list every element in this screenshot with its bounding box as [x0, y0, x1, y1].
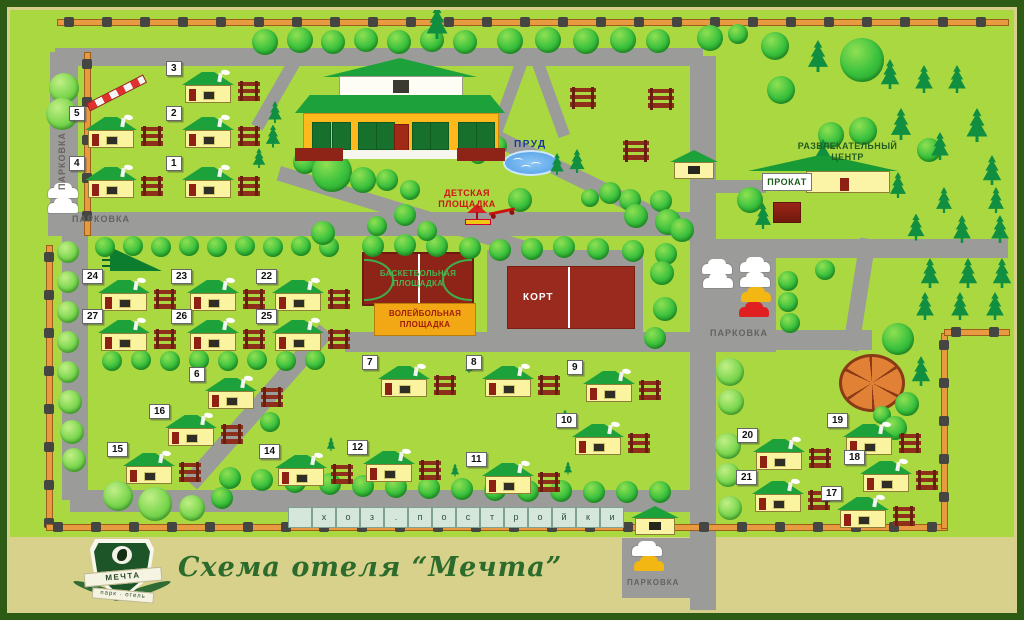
- tree-icon: [815, 260, 835, 280]
- car-icon: [634, 561, 664, 571]
- tree-icon: [778, 292, 798, 312]
- tree-icon: [207, 237, 227, 257]
- fence-post: [64, 17, 74, 27]
- tree-icon: [553, 236, 575, 258]
- fence-post: [939, 454, 949, 464]
- small-house: [670, 150, 718, 178]
- house-door: [489, 480, 496, 492]
- house-door: [579, 441, 586, 453]
- house-22: [272, 280, 352, 311]
- tree-icon: [761, 32, 789, 60]
- tennis-court-label: КОРТ: [508, 267, 568, 328]
- house-1: [182, 167, 262, 198]
- tree-icon: [583, 481, 605, 503]
- outbuildings-cell: о: [432, 507, 456, 528]
- house-10: [572, 424, 652, 455]
- woodpile-icon: [639, 380, 661, 400]
- tree-icon: [882, 323, 914, 355]
- house-number-label: 1: [166, 156, 182, 171]
- fence-post: [406, 17, 416, 27]
- tree-icon: [160, 351, 180, 371]
- fence-post: [862, 17, 872, 27]
- fence: [944, 329, 1010, 336]
- woodpile-icon: [243, 329, 265, 349]
- fence-post: [939, 340, 949, 350]
- house-12: [363, 451, 443, 482]
- house-number-label: 9: [567, 360, 583, 375]
- tree-icon: [350, 167, 376, 193]
- fence-post: [82, 59, 92, 69]
- tree-icon: [895, 392, 919, 416]
- woodpile-icon: [141, 126, 163, 146]
- building-clerestory: [339, 76, 463, 97]
- fence-post: [938, 17, 948, 27]
- fence: [46, 245, 53, 529]
- house-window: [203, 136, 215, 145]
- house-number-label: 2: [166, 106, 182, 121]
- house-3: [182, 72, 262, 103]
- fence-post: [927, 522, 937, 532]
- tree-icon: [622, 240, 644, 262]
- fence-post: [44, 290, 54, 300]
- house-window: [593, 443, 605, 452]
- woodpile-icon: [434, 375, 456, 395]
- house-number-label: 25: [256, 309, 277, 324]
- fence-post: [44, 252, 54, 262]
- woodpile-icon: [893, 506, 915, 526]
- pine-icon: [957, 258, 979, 288]
- fence-post: [596, 17, 606, 27]
- house-15: [123, 453, 203, 484]
- house-9: [583, 371, 663, 402]
- tree-icon: [103, 481, 133, 511]
- tree-icon: [573, 28, 599, 54]
- outbuildings-cell: р: [504, 507, 528, 528]
- house-25: [272, 320, 352, 351]
- playground-label: ДЕТСКАЯ ПЛОЩАДКА: [423, 188, 511, 211]
- tree-icon: [251, 469, 273, 491]
- fence-post: [939, 492, 949, 502]
- tree-icon: [179, 495, 205, 521]
- fence: [941, 333, 948, 529]
- house-24: [98, 280, 178, 311]
- house-door: [385, 383, 392, 395]
- parking-label-left-vertical: ПАРКОВКА: [57, 132, 67, 190]
- tree-icon: [394, 204, 416, 226]
- pond-label: ПРУД: [514, 139, 547, 150]
- small-house-roof: [670, 150, 718, 162]
- fence-post: [748, 17, 758, 27]
- fence-post: [44, 480, 54, 490]
- building-door: [394, 124, 409, 151]
- house-door: [279, 297, 286, 309]
- map-title: Схема отеля “Мечта”: [178, 552, 562, 583]
- tree-icon: [305, 350, 325, 370]
- tree-icon: [60, 420, 84, 444]
- woodpile-icon: [238, 81, 260, 101]
- fence-post: [129, 522, 139, 532]
- woodpile-icon: [648, 88, 674, 110]
- fence-post: [900, 17, 910, 27]
- house-5: [85, 117, 165, 148]
- pine-icon: [806, 40, 830, 72]
- shed: [773, 202, 801, 223]
- house-window: [296, 474, 308, 483]
- house-17: [837, 497, 917, 528]
- fence-post: [292, 17, 302, 27]
- fence-post: [53, 522, 63, 532]
- building-upper-roof: [323, 58, 477, 77]
- house-window: [773, 500, 785, 509]
- tree-icon: [376, 169, 398, 191]
- road: [531, 57, 570, 138]
- house-door: [105, 297, 112, 309]
- house-window: [399, 385, 411, 394]
- parking-label-center: ПАРКОВКА: [710, 328, 768, 338]
- pine-icon: [906, 214, 926, 241]
- tree-icon: [252, 29, 278, 55]
- woodpile-icon: [261, 387, 283, 407]
- fence-post: [444, 17, 454, 27]
- house-window: [119, 299, 131, 308]
- car-icon: [632, 546, 662, 556]
- tree-icon: [151, 237, 171, 257]
- tree-icon: [718, 496, 742, 520]
- woodpile-icon: [154, 329, 176, 349]
- car-icon: [740, 277, 770, 287]
- house-4: [85, 167, 165, 198]
- pine-icon: [919, 258, 941, 288]
- tree-icon: [644, 327, 666, 349]
- woodpile-icon: [179, 462, 201, 482]
- pine-icon: [914, 65, 935, 93]
- pine-icon: [563, 462, 573, 475]
- fence-post: [813, 522, 823, 532]
- tree-icon: [453, 30, 477, 54]
- tree-icon: [840, 38, 884, 82]
- volleyball-court: ВОЛЕЙБОЛЬНАЯ ПЛОЩАДКА: [374, 303, 476, 336]
- house-door: [130, 470, 137, 482]
- woodpile-icon: [538, 472, 560, 492]
- fence-post: [699, 522, 709, 532]
- tree-icon: [211, 487, 233, 509]
- tree-icon: [394, 234, 416, 256]
- house-window: [503, 482, 515, 491]
- house-window: [774, 458, 786, 467]
- woodpile-icon: [538, 375, 560, 395]
- house-window: [881, 480, 893, 489]
- fence-post: [167, 522, 177, 532]
- house-door: [279, 337, 286, 349]
- house-number-label: 19: [827, 413, 848, 428]
- tree-icon: [95, 237, 115, 257]
- fence-post: [254, 17, 264, 27]
- car-icon: [740, 262, 770, 272]
- small-house-window: [688, 166, 700, 174]
- house-number-label: 16: [149, 404, 170, 419]
- tennis-court: КОРТ: [507, 266, 635, 329]
- house-number-label: 8: [466, 355, 482, 370]
- woodpile-icon: [328, 329, 350, 349]
- house-window: [503, 385, 515, 394]
- house-14: [275, 455, 355, 486]
- house-window: [203, 91, 215, 100]
- tree-icon: [219, 467, 241, 489]
- house-number-label: 21: [736, 470, 757, 485]
- house-27: [98, 320, 178, 351]
- fence-post: [102, 17, 112, 27]
- tree-icon: [58, 390, 82, 414]
- house-door: [189, 89, 196, 101]
- house-window: [208, 299, 220, 308]
- tree-icon: [367, 216, 387, 236]
- house-window: [604, 390, 616, 399]
- tree-icon: [131, 350, 151, 370]
- hotel-logo: МЕЧТА парк · отель: [76, 537, 168, 609]
- house-window: [203, 186, 215, 195]
- tree-icon: [610, 27, 636, 53]
- house-door: [194, 337, 201, 349]
- tree-icon: [287, 27, 313, 53]
- tree-icon: [716, 358, 744, 386]
- tree-icon: [354, 28, 378, 52]
- basketball-court-label: БАСКЕТБОЛЬНАЯ ПЛОЩАДКА: [364, 254, 472, 304]
- house-8: [482, 366, 562, 397]
- woodpile-icon: [141, 176, 163, 196]
- house-window: [106, 186, 118, 195]
- tennis-court-pad: КОРТ: [487, 250, 643, 342]
- house-23: [187, 280, 267, 311]
- car-icon: [703, 278, 733, 288]
- fence-post: [44, 442, 54, 452]
- fence-post: [824, 17, 834, 27]
- house-number-label: 6: [189, 367, 205, 382]
- woodpile-icon: [419, 460, 441, 480]
- fence-post: [786, 17, 796, 27]
- house-door: [92, 134, 99, 146]
- tree-icon: [697, 25, 723, 51]
- tree-icon: [362, 235, 384, 257]
- house-window: [293, 339, 305, 348]
- house-door: [844, 514, 851, 526]
- outbuildings-cell: й: [552, 507, 576, 528]
- rental-label: ПРОКАТ: [762, 173, 812, 191]
- house-18: [860, 461, 940, 492]
- outbuildings-cell: з: [360, 507, 384, 528]
- house-door: [105, 337, 112, 349]
- house-window: [858, 516, 870, 525]
- fence-post: [178, 17, 188, 27]
- fence-post: [775, 522, 785, 532]
- tree-icon: [728, 24, 748, 44]
- house-door: [760, 456, 767, 468]
- outbuildings-cell: с: [456, 507, 480, 528]
- house-number-label: 10: [556, 413, 577, 428]
- main-building: [295, 58, 505, 162]
- house-2: [182, 117, 262, 148]
- tree-icon: [587, 238, 609, 260]
- pine-icon: [915, 292, 936, 320]
- house-window: [106, 136, 118, 145]
- house-number-label: 4: [69, 156, 85, 171]
- house-number-label: 27: [82, 309, 103, 324]
- tree-icon: [57, 271, 79, 293]
- tree-icon: [649, 481, 671, 503]
- tree-icon: [291, 236, 311, 256]
- fence-post: [558, 17, 568, 27]
- tree-icon: [780, 313, 800, 333]
- house-window: [144, 472, 156, 481]
- tree-icon: [535, 27, 561, 53]
- pine-icon: [889, 108, 913, 140]
- outbuildings-cell: п: [408, 507, 432, 528]
- tree-icon: [400, 180, 420, 200]
- fence-post: [91, 522, 101, 532]
- woodpile-icon: [331, 464, 353, 484]
- woodpile-icon: [238, 126, 260, 146]
- fence-post: [939, 416, 949, 426]
- entertainment-center-label: РАЗВЛЕКАТЕЛЬНЫЙ ЦЕНТР: [775, 141, 920, 163]
- building-facade: [303, 113, 499, 152]
- tree-icon: [521, 238, 543, 260]
- house-door: [867, 478, 874, 490]
- woodpile-icon: [328, 289, 350, 309]
- tree-icon: [646, 29, 670, 53]
- fence-post: [482, 17, 492, 27]
- tree-icon: [311, 221, 335, 245]
- fence-post: [44, 366, 54, 376]
- tree-icon: [138, 487, 172, 521]
- house-door: [489, 383, 496, 395]
- fence-post: [520, 17, 530, 27]
- small-house: [631, 506, 679, 534]
- house-number-label: 14: [259, 444, 280, 459]
- tree-icon: [718, 389, 744, 415]
- tree-icon: [599, 182, 621, 204]
- pine-icon: [947, 65, 968, 93]
- tree-icon: [624, 204, 648, 228]
- tree-icon: [218, 351, 238, 371]
- tree-icon: [650, 261, 674, 285]
- outbuildings-cell: и: [600, 507, 624, 528]
- tree-icon: [260, 412, 280, 432]
- pond: [503, 150, 559, 176]
- house-window: [208, 339, 220, 348]
- woodpile-icon: [916, 470, 938, 490]
- fence-post: [976, 17, 986, 27]
- tree-icon: [387, 30, 411, 54]
- car-icon: [741, 292, 771, 302]
- tree-icon: [57, 241, 79, 263]
- woodpile-icon: [154, 289, 176, 309]
- fence-post: [140, 17, 150, 27]
- pine-icon: [326, 437, 336, 451]
- house-door: [590, 388, 597, 400]
- pine-icon: [950, 292, 971, 320]
- pine-icon: [935, 187, 954, 213]
- volleyball-court-label: ВОЛЕЙБОЛЬНАЯ ПЛОЩАДКА: [375, 304, 475, 335]
- tree-icon: [616, 481, 638, 503]
- fence-post: [951, 327, 961, 337]
- woodpile-icon: [570, 87, 596, 109]
- fence-post: [989, 327, 999, 337]
- pine-icon: [450, 464, 460, 477]
- house-door: [194, 297, 201, 309]
- fence-post: [634, 17, 644, 27]
- basketball-court: БАСКЕТБОЛЬНАЯ ПЛОЩАДКА: [362, 252, 474, 306]
- tree-icon: [581, 189, 599, 207]
- tree-icon: [179, 236, 199, 256]
- house-window: [226, 397, 238, 406]
- house-number-label: 7: [362, 355, 378, 370]
- small-house-roof: [631, 506, 679, 518]
- house-26: [187, 320, 267, 351]
- house-number-label: 23: [171, 269, 192, 284]
- outbuildings-cell: к: [576, 507, 600, 528]
- tree-icon: [62, 448, 86, 472]
- hotel-map: РАЗВЛЕКАТЕЛЬНЫЙ ЦЕНТР ПРОКАТ БАСКЕТБОЛЬН…: [0, 0, 1024, 620]
- house-door: [172, 432, 179, 444]
- woodpile-icon: [221, 424, 243, 444]
- barrier-gate-icon: [86, 74, 147, 111]
- fence: [57, 19, 1009, 26]
- fence-post: [368, 17, 378, 27]
- tree-icon: [57, 331, 79, 353]
- fence-post: [44, 328, 54, 338]
- outbuildings-cell: [288, 507, 312, 528]
- car-icon: [48, 203, 78, 213]
- woodpile-icon: [809, 448, 831, 468]
- house-number-label: 26: [171, 309, 192, 324]
- tree-icon: [417, 221, 437, 241]
- house-number-label: 24: [82, 269, 103, 284]
- house-window: [293, 299, 305, 308]
- house-number-label: 11: [466, 452, 487, 467]
- house-number-label: 12: [347, 440, 368, 455]
- tree-icon: [670, 218, 694, 242]
- house-number-label: 3: [166, 61, 182, 76]
- building-roof: [295, 95, 505, 113]
- woodpile-icon: [238, 176, 260, 196]
- fence-post: [243, 522, 253, 532]
- house-door: [370, 468, 377, 480]
- house-7: [378, 366, 458, 397]
- tree-icon: [459, 237, 481, 259]
- fence-post: [737, 522, 747, 532]
- fence-post: [330, 17, 340, 27]
- house-door: [212, 395, 219, 407]
- pine-icon: [991, 258, 1013, 288]
- pine-icon: [965, 108, 990, 142]
- house-20: [753, 439, 833, 470]
- parking-label-left: ПАРКОВКА: [72, 214, 130, 224]
- house-door: [189, 134, 196, 146]
- fence-post: [205, 522, 215, 532]
- tree-icon: [57, 301, 79, 323]
- tree-icon: [263, 237, 283, 257]
- house-21: [752, 481, 832, 512]
- tree-icon: [497, 28, 523, 54]
- house-6: [205, 378, 285, 409]
- pine-icon: [252, 148, 267, 168]
- house-number-label: 17: [821, 486, 842, 501]
- house-door: [759, 498, 766, 510]
- outbuildings-cell: т: [480, 507, 504, 528]
- tree-icon: [489, 239, 511, 261]
- house-door: [189, 184, 196, 196]
- pine-icon: [910, 356, 932, 386]
- tree-icon: [123, 236, 143, 256]
